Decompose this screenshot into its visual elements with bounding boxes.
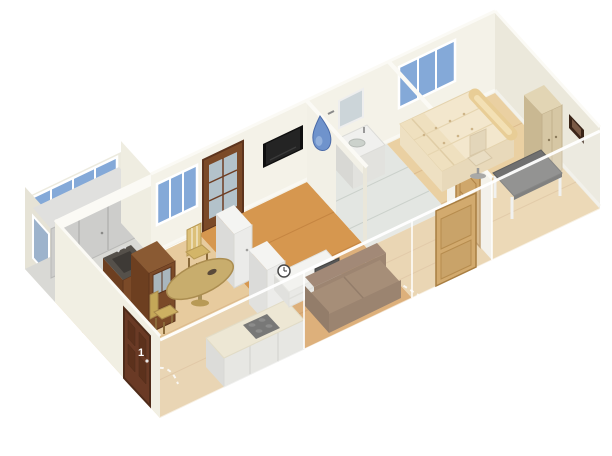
door-handle xyxy=(145,359,148,362)
floorplan-canvas[interactable]: 1 xyxy=(0,0,612,456)
apartment-3d-render: 1 xyxy=(0,0,612,456)
door-number-label: 1 xyxy=(138,347,144,359)
wall-clock[interactable] xyxy=(278,265,290,277)
